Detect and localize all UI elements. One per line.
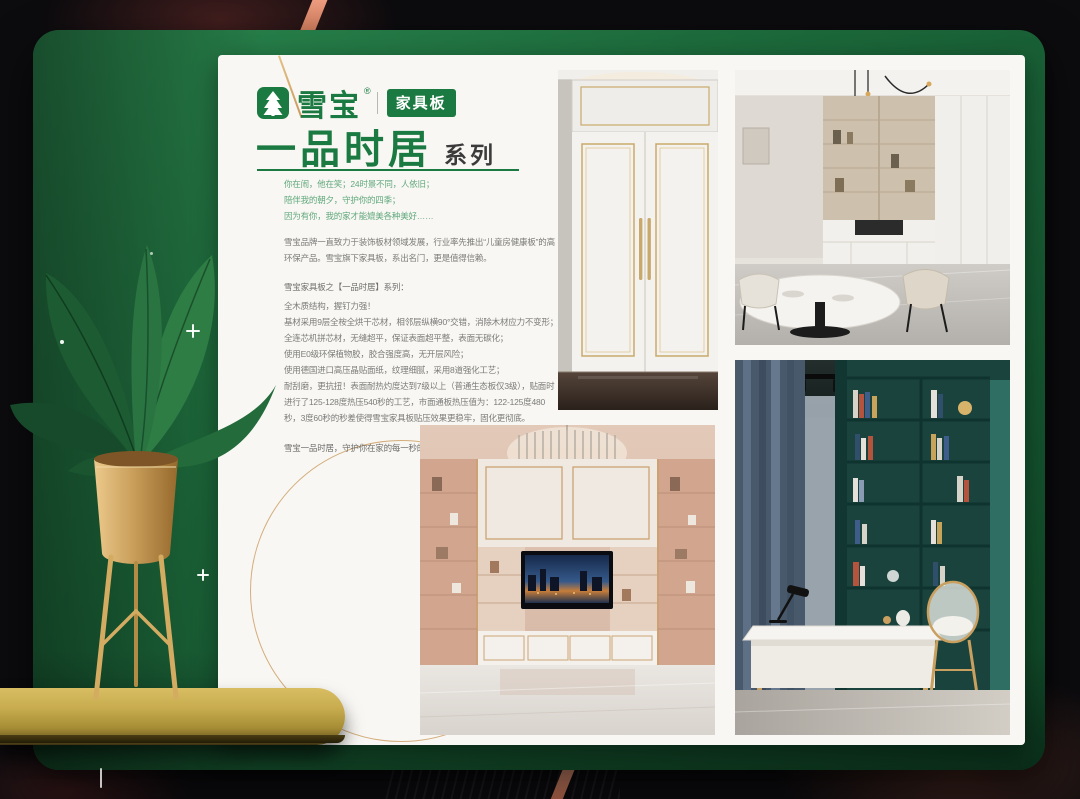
brand-intro-paragraph: 雪宝品牌一直致力于装饰板材领域发展，行业率先推出“儿童房健康板”的高环保产品。雪… bbox=[284, 234, 560, 266]
tv-screen bbox=[521, 551, 613, 609]
tree-b-logo-icon bbox=[256, 86, 290, 120]
tagline: 你在闹，他在笑；24时景不同，人依旧； 陪伴我的朝夕，守护你的四季； 因为有你，… bbox=[284, 176, 560, 224]
category-badge: 家具板 bbox=[387, 89, 456, 117]
feature-item: 使用E0级环保植物胶，胶合强度高，无开层风险； bbox=[284, 346, 560, 362]
poster-canvas: 雪宝 ® 家具板 一品时居 系列 你在闹，他在笑；24时景不同，人依旧； 陪伴我… bbox=[0, 0, 1080, 799]
gold-handle bbox=[639, 218, 642, 280]
sparkle-dot bbox=[150, 252, 153, 255]
photo-wardrobe-gold-trim-doors bbox=[558, 70, 718, 410]
feature-item: 全连芯机拼芯材，无缝超平，保证表面超平整，表面无碳化； bbox=[284, 330, 560, 346]
tagline-line: 因为有你，我的家才能媲美各种美好…… bbox=[284, 208, 560, 224]
title-underline bbox=[257, 169, 519, 171]
gold-handle bbox=[648, 218, 651, 280]
pendant-light bbox=[866, 92, 871, 97]
plant-stand-legs bbox=[96, 557, 176, 697]
series-title: 一品时居 bbox=[256, 117, 432, 175]
feature-item: 耐刮磨，更抗扭！表面耐热灼度达到7级以上（普通生态板仅3级），贴面时进行了125… bbox=[284, 378, 560, 426]
feature-item: 使用德国进口高压晶贴面纸，纹理细腻，采用8道强化工艺； bbox=[284, 362, 560, 378]
registered-mark: ® bbox=[364, 86, 371, 96]
photo-dining-room-display-cabinet bbox=[735, 70, 1010, 345]
right-display-tower bbox=[657, 459, 715, 665]
left-display-tower bbox=[420, 459, 478, 665]
media-console bbox=[478, 631, 657, 665]
features-heading: 雪宝家具板之【一品时居】系列： bbox=[284, 279, 560, 295]
series-title-row: 一品时居 系列 bbox=[256, 117, 496, 175]
sparkle-star bbox=[197, 569, 209, 581]
feature-item: 基材采用9层全桉全烘干芯材，相邻层纵横90°交错，消除木材应力不变形； bbox=[284, 314, 560, 330]
sparkle-line bbox=[100, 768, 102, 788]
counter-niche bbox=[855, 220, 903, 235]
plant-leaves bbox=[10, 245, 276, 476]
sparkle-dot bbox=[60, 340, 64, 344]
photo-living-room-tv-wall bbox=[420, 425, 715, 735]
potted-plant bbox=[10, 215, 280, 715]
feature-item: 全木质结构，握钉力强！ bbox=[284, 298, 560, 314]
sparkle-star bbox=[186, 324, 200, 338]
photo-green-study-bookcase bbox=[735, 360, 1010, 735]
series-suffix: 系列 bbox=[444, 136, 496, 170]
wall-art bbox=[743, 128, 769, 164]
logo-divider bbox=[377, 92, 378, 114]
tagline-line: 你在闹，他在笑；24时景不同，人依旧； bbox=[284, 176, 560, 192]
plant-pot bbox=[94, 451, 178, 564]
features-list: 全木质结构，握钉力强！ 基材采用9层全桉全烘干芯材，相邻层纵横90°交错，消除木… bbox=[284, 298, 560, 426]
body-text-column: 你在闹，他在笑；24时景不同，人依旧； 陪伴我的朝夕，守护你的四季； 因为有你，… bbox=[284, 176, 560, 456]
gold-shelf-edge bbox=[0, 735, 345, 743]
tagline-line: 陪伴我的朝夕，守护你的四季； bbox=[284, 192, 560, 208]
